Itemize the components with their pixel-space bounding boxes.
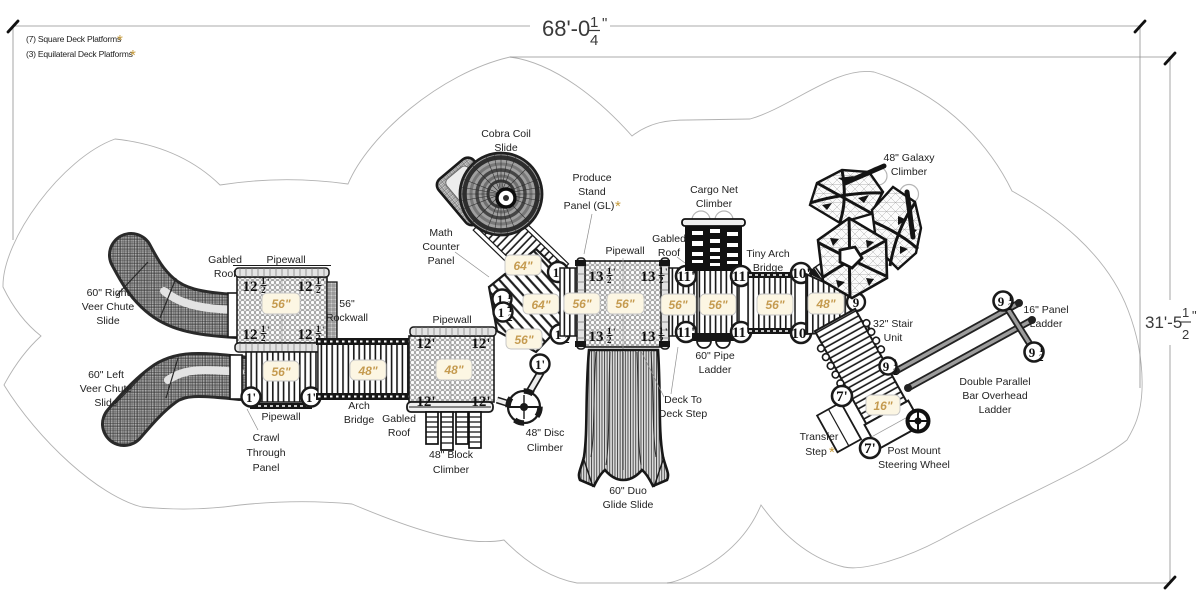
svg-text:60" Pipe: 60" Pipe xyxy=(695,350,734,362)
svg-text:Veer Chute: Veer Chute xyxy=(80,383,133,395)
svg-text:Post Mount: Post Mount xyxy=(887,445,940,457)
svg-text:1': 1' xyxy=(306,390,316,405)
svg-text:*: * xyxy=(130,47,136,64)
svg-text:': ' xyxy=(267,325,270,335)
svg-text:Slide: Slide xyxy=(494,142,518,154)
svg-text:60" Right: 60" Right xyxy=(87,287,130,299)
svg-text:Bridge: Bridge xyxy=(753,262,784,274)
svg-text:13: 13 xyxy=(641,269,656,285)
svg-text:Bar Overhead: Bar Overhead xyxy=(962,390,1028,402)
svg-text:Crawl: Crawl xyxy=(253,432,280,444)
svg-text:Gabled: Gabled xyxy=(382,413,416,425)
svg-text:48": 48" xyxy=(357,364,377,378)
svg-text:Gabled: Gabled xyxy=(208,254,242,266)
svg-text:Glide Slide: Glide Slide xyxy=(603,499,654,511)
svg-text:Unit: Unit xyxy=(884,332,903,344)
svg-text:64": 64" xyxy=(531,298,550,312)
svg-text:Slide: Slide xyxy=(96,315,120,327)
svg-text:*: * xyxy=(615,198,621,215)
svg-text:Through: Through xyxy=(246,447,285,459)
svg-text:1': 1' xyxy=(535,357,545,372)
svg-text:9: 9 xyxy=(998,294,1005,309)
svg-text:2: 2 xyxy=(1008,302,1013,312)
svg-text:Cargo Net: Cargo Net xyxy=(690,184,738,196)
svg-text:1: 1 xyxy=(590,14,598,31)
svg-text:*: * xyxy=(117,32,123,49)
svg-text:': ' xyxy=(322,277,325,287)
svg-text:Pipewall: Pipewall xyxy=(605,245,644,257)
svg-text:Panel: Panel xyxy=(428,255,455,267)
svg-text:': ' xyxy=(267,277,270,287)
svg-text:': ' xyxy=(665,327,668,337)
svg-text:48" Block: 48" Block xyxy=(429,449,474,461)
svg-text:Transfer: Transfer xyxy=(800,431,839,443)
svg-text:12': 12' xyxy=(471,394,490,410)
svg-text:2: 2 xyxy=(508,313,513,323)
svg-text:Math: Math xyxy=(429,227,453,239)
svg-text:48" Galaxy: 48" Galaxy xyxy=(883,152,935,164)
svg-text:Slide: Slide xyxy=(94,397,118,409)
svg-text:12': 12' xyxy=(416,336,435,352)
svg-text:11': 11' xyxy=(677,269,695,285)
svg-text:Double Parallel: Double Parallel xyxy=(959,376,1030,388)
svg-text:Pipewall: Pipewall xyxy=(432,314,471,326)
svg-text:56": 56" xyxy=(572,297,591,311)
svg-text:Deck Step: Deck Step xyxy=(659,408,708,420)
svg-text:2: 2 xyxy=(607,335,612,345)
svg-text:Arch: Arch xyxy=(348,400,370,412)
svg-text:2: 2 xyxy=(316,285,321,295)
svg-text:Climber: Climber xyxy=(696,198,733,210)
svg-text:': ' xyxy=(665,267,668,277)
svg-text:1: 1 xyxy=(553,265,560,280)
svg-text:": " xyxy=(1192,308,1197,323)
svg-text:48": 48" xyxy=(443,363,463,377)
svg-text:2: 2 xyxy=(659,275,664,285)
svg-text:Steering Wheel: Steering Wheel xyxy=(878,459,950,471)
svg-text:12: 12 xyxy=(243,279,258,295)
svg-text:Panel: Panel xyxy=(253,462,280,474)
svg-text:64": 64" xyxy=(513,259,532,273)
svg-text:Veer Chute: Veer Chute xyxy=(82,301,135,313)
svg-text:Climber: Climber xyxy=(527,442,564,454)
svg-text:16" Panel: 16" Panel xyxy=(1023,304,1068,316)
svg-text:56": 56" xyxy=(339,298,355,310)
svg-text:Stand: Stand xyxy=(578,186,606,198)
svg-text:*: * xyxy=(829,444,835,461)
svg-text:13: 13 xyxy=(589,269,604,285)
svg-text:Pipewall: Pipewall xyxy=(266,254,305,266)
svg-text:48" Disc: 48" Disc xyxy=(526,427,565,439)
svg-text:1: 1 xyxy=(498,305,505,320)
svg-text:32" Stair: 32" Stair xyxy=(873,318,913,330)
svg-text:": " xyxy=(602,15,607,32)
svg-text:2: 2 xyxy=(659,335,664,345)
svg-text:Deck To: Deck To xyxy=(664,394,702,406)
svg-text:12': 12' xyxy=(471,336,490,352)
svg-text:Ladder: Ladder xyxy=(979,404,1012,416)
svg-text:Tiny Arch: Tiny Arch xyxy=(746,248,790,260)
svg-text:Roof: Roof xyxy=(388,427,410,439)
svg-text:1: 1 xyxy=(1182,305,1189,320)
svg-text:56": 56" xyxy=(271,365,290,379)
svg-text:56": 56" xyxy=(668,298,687,312)
svg-text:Rockwall: Rockwall xyxy=(326,312,368,324)
svg-text:Roof: Roof xyxy=(658,247,680,259)
svg-text:13: 13 xyxy=(641,329,656,345)
svg-text:56": 56" xyxy=(708,298,727,312)
svg-text:56": 56" xyxy=(514,333,533,347)
svg-text:16": 16" xyxy=(873,399,892,413)
svg-text:7': 7' xyxy=(864,441,876,457)
svg-text:Produce: Produce xyxy=(572,172,611,184)
svg-text:(3) Equilateral Deck Platforms: (3) Equilateral Deck Platforms xyxy=(26,49,133,59)
svg-text:2: 2 xyxy=(893,367,898,377)
svg-text:Ladder: Ladder xyxy=(699,364,732,376)
svg-text:': ' xyxy=(613,267,616,277)
svg-text:9: 9 xyxy=(1029,345,1036,360)
svg-text:Pipewall: Pipewall xyxy=(261,411,300,423)
svg-text:4: 4 xyxy=(590,32,598,49)
svg-text:56": 56" xyxy=(765,298,784,312)
svg-text:2: 2 xyxy=(261,333,266,343)
svg-text:Gabled: Gabled xyxy=(652,233,686,245)
svg-text:56": 56" xyxy=(271,297,290,311)
svg-text:Bridge: Bridge xyxy=(344,414,375,426)
svg-text:7': 7' xyxy=(836,389,848,405)
svg-text:12: 12 xyxy=(243,327,258,343)
svg-text:12': 12' xyxy=(416,394,435,410)
svg-text:68'-0: 68'-0 xyxy=(542,16,590,41)
svg-text:': ' xyxy=(613,327,616,337)
svg-text:13: 13 xyxy=(589,329,604,345)
svg-text:12: 12 xyxy=(298,327,313,343)
svg-text:12: 12 xyxy=(298,279,313,295)
svg-text:Cobra Coil: Cobra Coil xyxy=(481,128,531,140)
svg-text:48": 48" xyxy=(815,297,835,311)
svg-text:Ladder: Ladder xyxy=(1030,318,1063,330)
svg-text:56": 56" xyxy=(615,297,634,311)
svg-text:': ' xyxy=(322,325,325,335)
svg-text:9: 9 xyxy=(883,359,890,374)
svg-text:2: 2 xyxy=(607,275,612,285)
svg-text:1': 1' xyxy=(246,390,256,405)
svg-text:2: 2 xyxy=(1182,327,1189,342)
svg-text:Step: Step xyxy=(805,446,827,458)
svg-text:60" Duo: 60" Duo xyxy=(609,485,647,497)
svg-text:Counter: Counter xyxy=(422,241,460,253)
svg-text:60" Left: 60" Left xyxy=(88,369,124,381)
svg-text:31'-5: 31'-5 xyxy=(1145,313,1182,332)
svg-text:Climber: Climber xyxy=(433,464,470,476)
svg-text:Climber: Climber xyxy=(891,166,928,178)
svg-text:2: 2 xyxy=(1039,353,1044,363)
svg-text:Roof: Roof xyxy=(214,268,236,280)
svg-text:(7) Square Deck Platforms: (7) Square Deck Platforms xyxy=(26,34,121,44)
svg-text:Panel (GL): Panel (GL) xyxy=(564,200,615,212)
